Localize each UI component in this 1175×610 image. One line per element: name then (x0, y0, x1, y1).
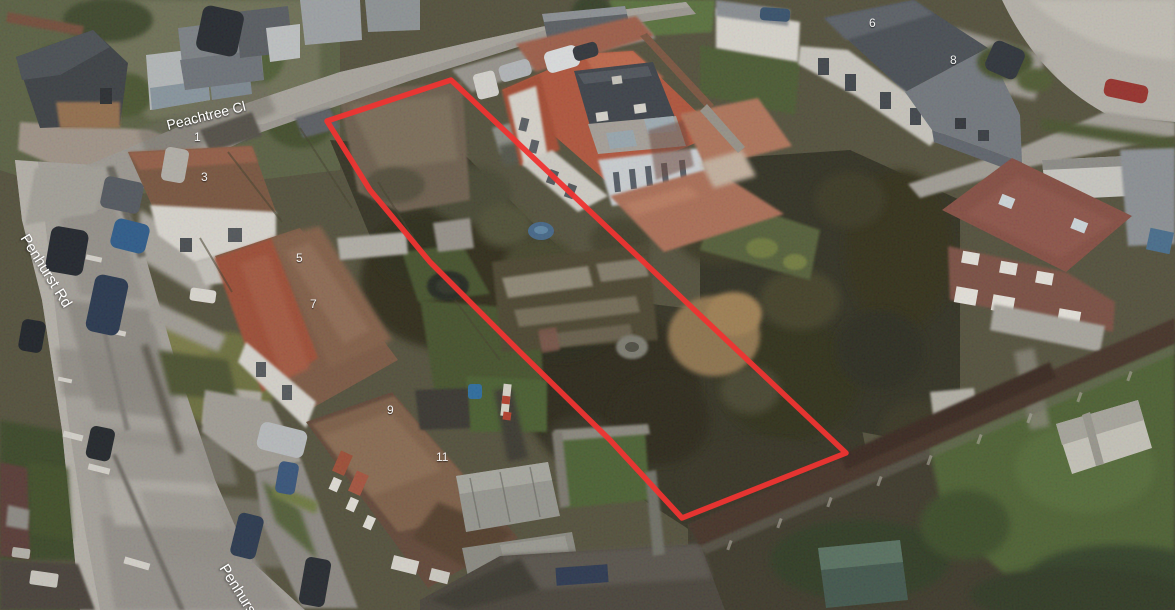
svg-text:1: 1 (194, 130, 201, 144)
svg-text:7: 7 (310, 297, 317, 311)
svg-text:3: 3 (201, 170, 208, 184)
svg-text:9: 9 (387, 403, 394, 417)
svg-text:6: 6 (869, 16, 876, 30)
svg-text:11: 11 (436, 450, 449, 464)
svg-text:8: 8 (950, 53, 957, 67)
svg-text:5: 5 (296, 251, 303, 265)
